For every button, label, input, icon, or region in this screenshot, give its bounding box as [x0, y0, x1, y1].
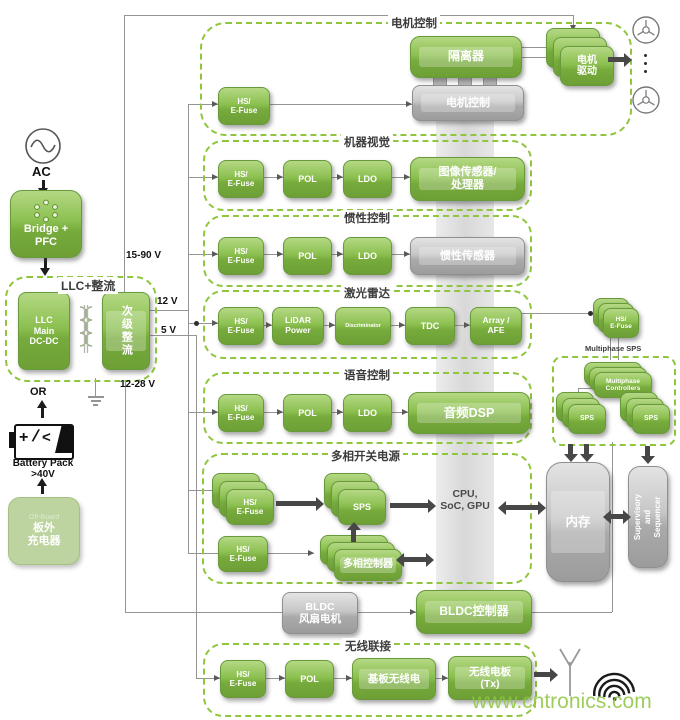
vision-efuse-block: HS/ E-Fuse: [218, 160, 264, 198]
sps-to-cpu-arrow: [390, 503, 428, 508]
motor-icon: [631, 85, 661, 115]
transformer-icon: [70, 302, 102, 358]
voice-ldo-block: LDO: [343, 394, 392, 432]
discriminator-block: Discriminator: [335, 307, 391, 345]
voice-pol-block: POL: [283, 394, 332, 432]
motor-output-arrow: [608, 57, 624, 62]
label-wireless: 无线联接: [342, 638, 394, 654]
label-llc: LLC+整流: [58, 277, 118, 294]
rail-12v: 12 V: [157, 296, 178, 307]
sps-stack-block: SPS: [338, 489, 386, 525]
battery-voltage-label: >40V: [8, 469, 78, 480]
sps-to-supervisor-arrow: [645, 446, 650, 456]
ac-source-icon: [23, 126, 63, 166]
cpu-memory-arrow: [506, 505, 538, 510]
label-multiphase-sps: Multiphase SPS: [582, 344, 644, 353]
label-voice: 语音控制: [341, 367, 393, 383]
supervisor-label: Supervisory and Sequencer: [633, 494, 663, 540]
memory-efuse-block: HS/ E-Fuse: [603, 308, 639, 338]
or-label: OR: [30, 386, 47, 398]
llc-main-dcdc-block: LLC Main DC-DC: [18, 292, 70, 370]
memory-supervisor-arrow: [611, 514, 623, 519]
vision-ldo-block: LDO: [343, 160, 392, 198]
offboard-charger-block: Off-Board 板外 充电器: [8, 497, 80, 565]
image-sensor-block: 图像传感器/ 处理器: [410, 157, 525, 201]
inertial-ldo-block: LDO: [343, 237, 392, 275]
multiphase-controller-block: 多相控制器: [334, 549, 402, 581]
multiphase-efuse2-block: HS/ E-Fuse: [218, 536, 268, 572]
bldc-controller-block: BLDC控制器: [416, 590, 532, 634]
battery-label: Battery Pack: [8, 458, 78, 469]
bridge-pfc-block: Bridge + PFC: [10, 190, 82, 258]
supervisor-block: Supervisory and Sequencer: [628, 466, 668, 568]
rail-15-90v: 15-90 V: [126, 250, 161, 261]
controller-to-sps-arrow: [351, 530, 356, 542]
lidar-efuse-block: HS/ E-Fuse: [218, 307, 264, 345]
baseboard-radio-block: 基板无线电: [352, 658, 436, 700]
sps-right-block: SPS: [632, 404, 670, 434]
label-lidar: 激光雷达: [341, 285, 393, 301]
motor-icon: [631, 15, 661, 45]
inertial-efuse-block: HS/ E-Fuse: [218, 237, 264, 275]
label-motor-control: 电机控制: [388, 15, 440, 31]
block-diagram: 电机控制 机器视觉 惯性控制 激光雷达 语音控制 多相开关电源 无线联接 Mul…: [0, 0, 680, 720]
sps-to-memory-arrow: [568, 444, 573, 454]
inertial-sensor-block: 惯性传感器: [410, 237, 525, 275]
watermark: www.cntronics.com: [472, 690, 652, 714]
sps-to-memory-arrow: [584, 444, 589, 454]
tdc-block: TDC: [405, 307, 455, 345]
wireless-efuse-block: HS/ E-Fuse: [220, 660, 266, 698]
wireless-pol-block: POL: [285, 660, 334, 698]
label-multiphase: 多相开关电源: [328, 448, 403, 464]
voice-efuse-block: HS/ E-Fuse: [218, 394, 264, 432]
motor-controller-block: 电机控制: [412, 85, 524, 121]
charger-label: 板外 充电器: [28, 522, 61, 547]
tx-to-antenna-arrow: [534, 672, 550, 677]
lidar-power-block: LiDAR Power: [272, 307, 324, 345]
rail-12-28v: 12-28 V: [120, 379, 155, 390]
cpu-soc-gpu-label: CPU, SoC, GPU: [436, 488, 494, 512]
isolator-block: 隔离器: [410, 36, 522, 78]
motor-drive-block: 电机 驱动: [560, 46, 614, 86]
label-machine-vision: 机器视觉: [341, 134, 393, 150]
motor-efuse-block: HS/ E-Fuse: [218, 87, 270, 125]
memory-block: 内存: [546, 462, 610, 582]
vision-pol-block: POL: [283, 160, 332, 198]
bridge-pfc-label: Bridge + PFC: [24, 223, 68, 248]
rail-5v: 5 V: [161, 325, 176, 336]
sps-left-block: SPS: [568, 404, 606, 434]
battery-icon: + / <: [14, 424, 74, 460]
secondary-rectifier-block: 次级整流: [102, 292, 150, 370]
efuse-to-sps-arrow: [276, 501, 316, 506]
inertial-pol-block: POL: [283, 237, 332, 275]
multiphase-efuse1-block: HS/ E-Fuse: [226, 489, 274, 525]
controller-bus-arrow: [404, 557, 426, 562]
bldc-fan-block: BLDC 风扇电机: [282, 592, 358, 634]
audio-dsp-block: 音频DSP: [408, 392, 530, 434]
array-afe-block: Array / AFE: [470, 307, 522, 345]
label-inertial: 惯性控制: [341, 210, 393, 226]
ac-label: AC: [32, 164, 51, 179]
bridge-rectifier-icon: [31, 199, 61, 223]
